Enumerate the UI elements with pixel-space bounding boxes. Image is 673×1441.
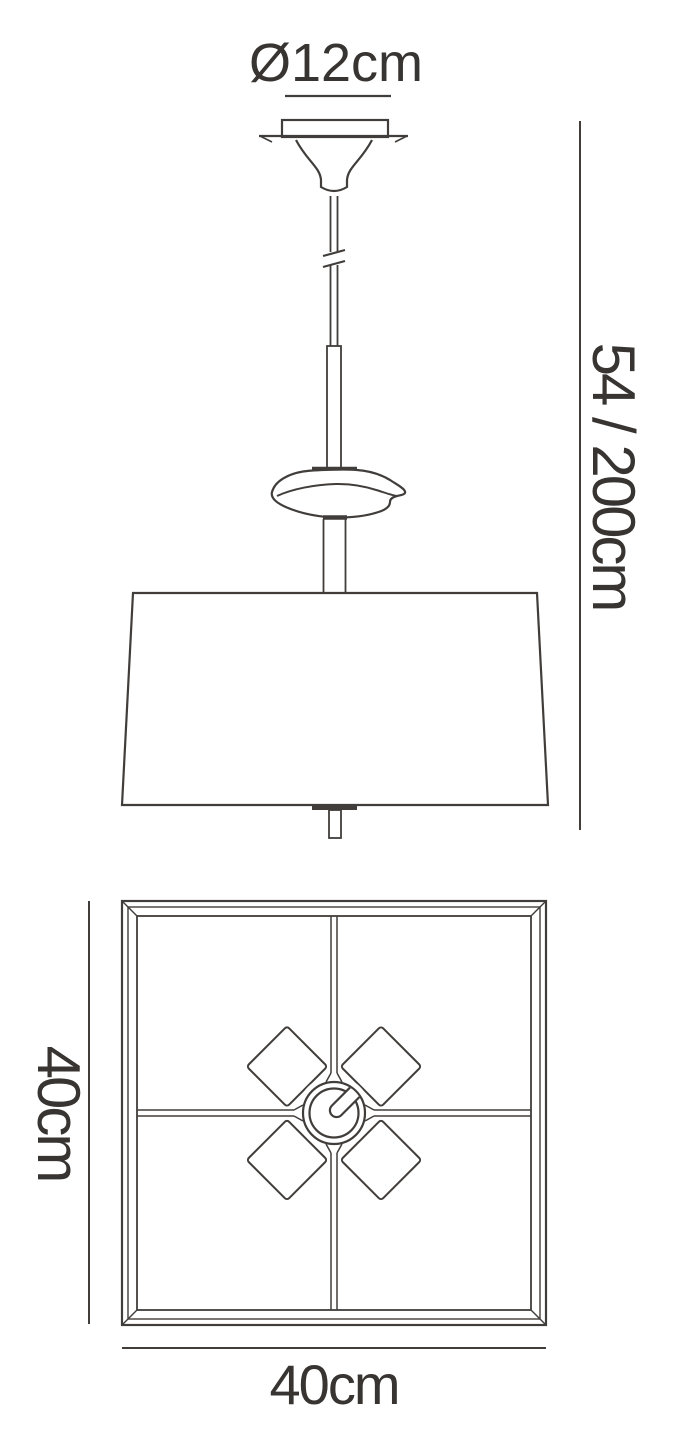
width-dimension-label: 40cm [270, 1353, 399, 1416]
frame-miter-top-left [123, 902, 137, 916]
frame-miter-top-right [531, 902, 545, 916]
lampshade-side [122, 593, 548, 805]
finial-stub [329, 810, 341, 838]
depth-dimension-label: 40cm [25, 1046, 92, 1181]
rod-break-mark-2 [323, 261, 345, 267]
frame-miter-bottom-left [123, 1310, 137, 1324]
frame-miter-bottom-right [531, 1310, 545, 1324]
canopy-trumpet [296, 140, 372, 191]
rod-sleeve [327, 346, 341, 469]
canopy-diameter-label: Ø12cm [249, 33, 423, 93]
rod-break-mark-1 [323, 250, 345, 256]
ceiling-canopy-box [282, 120, 388, 137]
diagram-svg: Ø12cm 54 / 200cm [0, 0, 673, 1441]
height-dimension-label: 54 / 200cm [580, 343, 647, 610]
side-view: Ø12cm 54 / 200cm [122, 33, 647, 838]
plan-view: 40cm 40cm [25, 901, 546, 1416]
dimension-diagram: Ø12cm 54 / 200cm [0, 0, 673, 1441]
